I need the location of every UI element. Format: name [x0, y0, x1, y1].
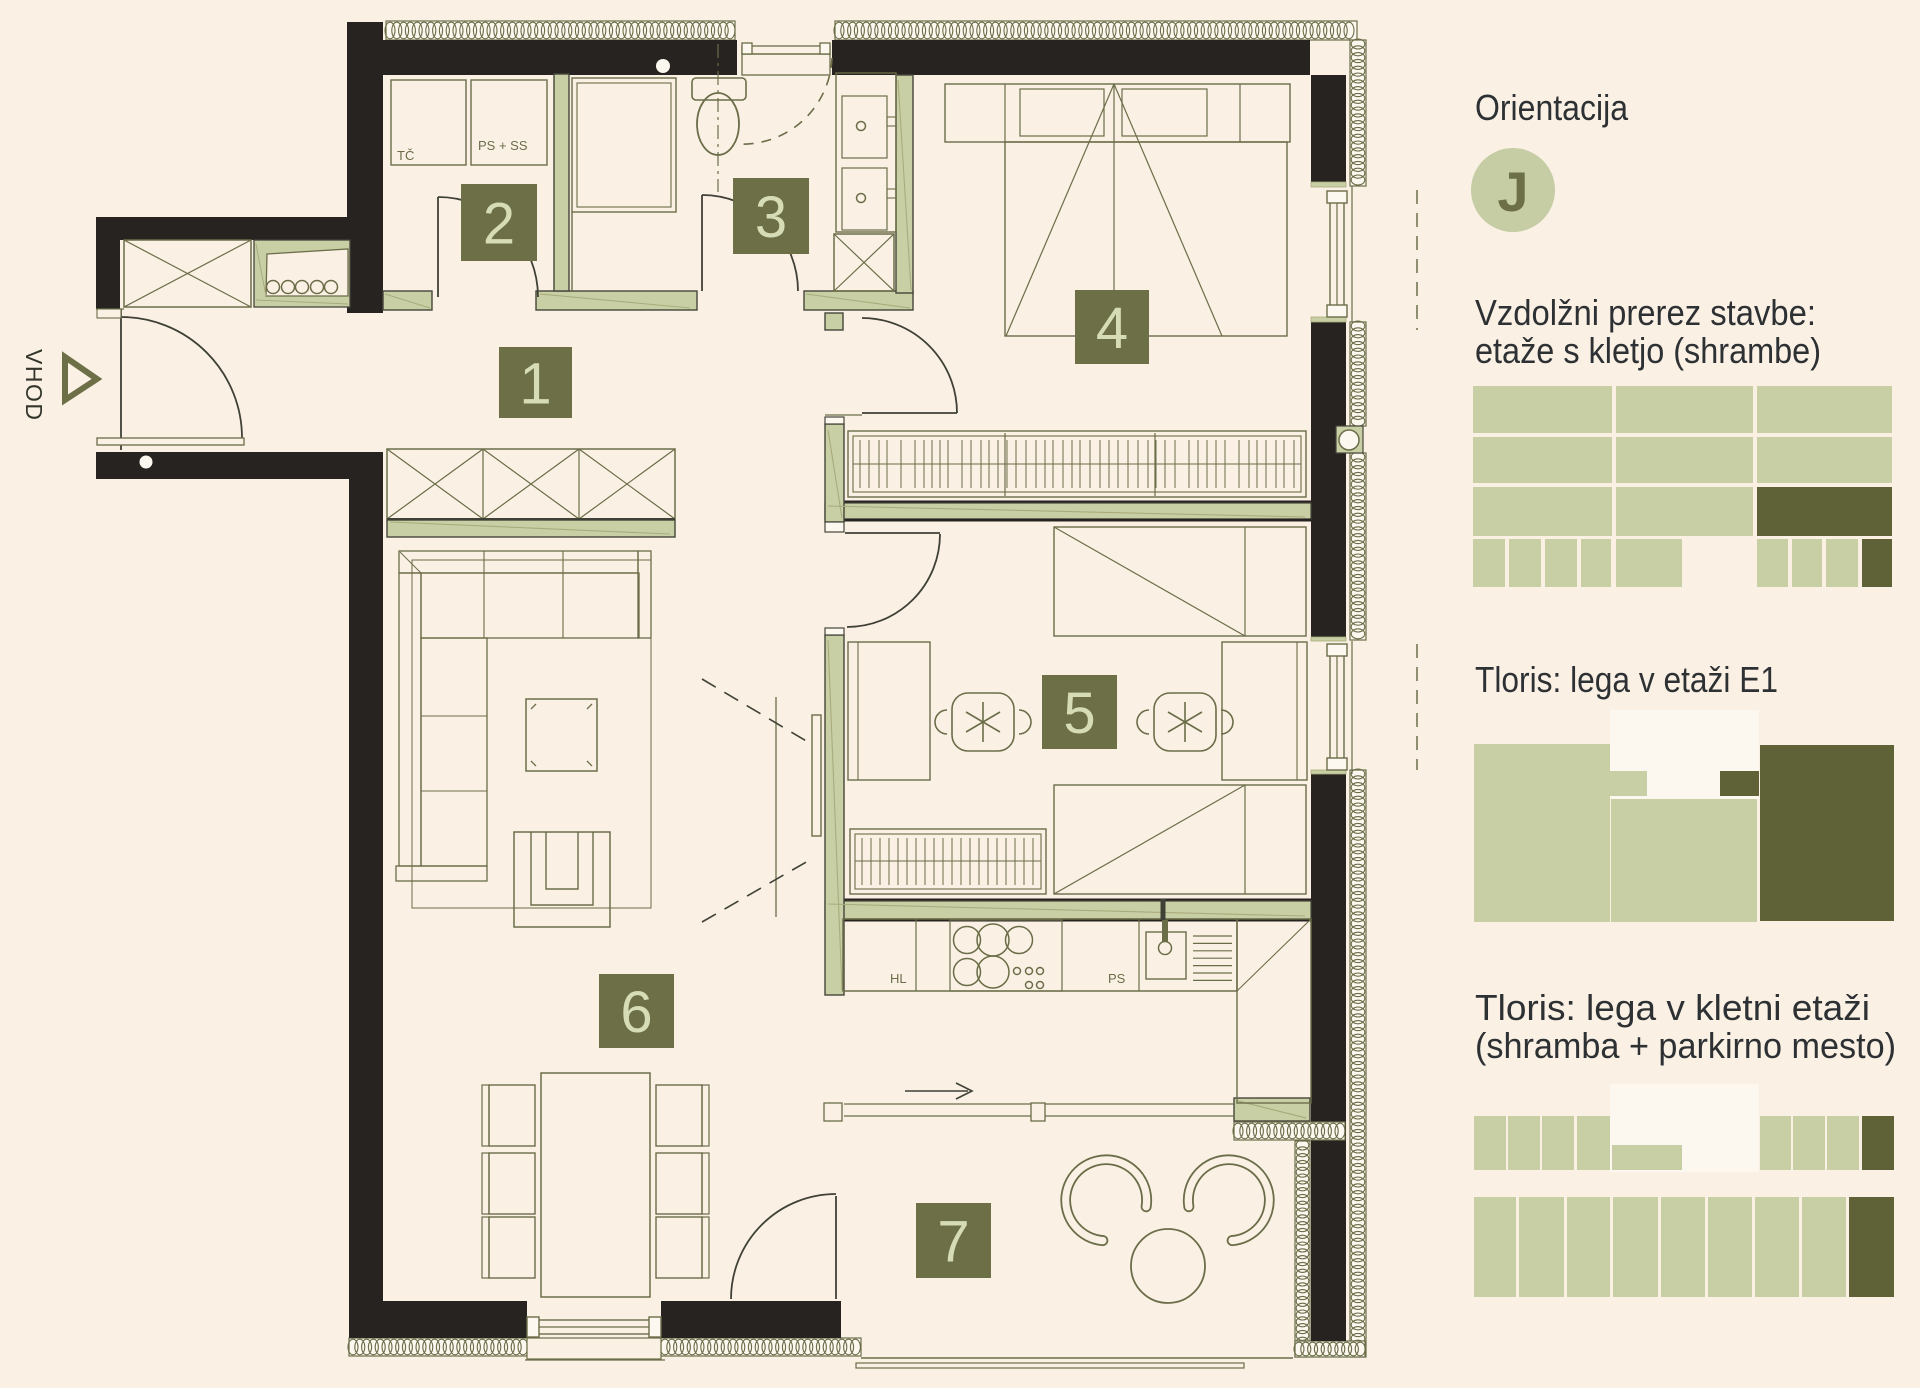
- svg-text:2: 2: [483, 192, 515, 257]
- svg-text:HL: HL: [890, 971, 907, 986]
- svg-text:PS: PS: [1108, 971, 1126, 986]
- svg-text:Orientacija: Orientacija: [1475, 87, 1629, 128]
- svg-text:Tloris: lega v kletni etaži: Tloris: lega v kletni etaži: [1475, 987, 1870, 1028]
- svg-text:(shramba + parkirno mesto): (shramba + parkirno mesto): [1475, 1025, 1896, 1066]
- svg-text:5: 5: [1063, 681, 1095, 746]
- svg-text:Vzdolžni prerez stavbe:: Vzdolžni prerez stavbe:: [1475, 292, 1816, 333]
- svg-text:etaže s kletjo (shrambe): etaže s kletjo (shrambe): [1475, 330, 1821, 371]
- svg-text:4: 4: [1096, 296, 1128, 361]
- svg-text:VHOD: VHOD: [21, 349, 47, 421]
- svg-text:1: 1: [519, 352, 551, 417]
- svg-text:Tloris: lega v etaži E1: Tloris: lega v etaži E1: [1475, 659, 1778, 700]
- svg-text:7: 7: [937, 1210, 969, 1275]
- svg-text:6: 6: [620, 980, 652, 1045]
- svg-text:TČ: TČ: [397, 148, 414, 163]
- svg-text:J: J: [1497, 160, 1528, 223]
- svg-text:PS + SS: PS + SS: [478, 138, 528, 153]
- svg-text:3: 3: [755, 185, 787, 250]
